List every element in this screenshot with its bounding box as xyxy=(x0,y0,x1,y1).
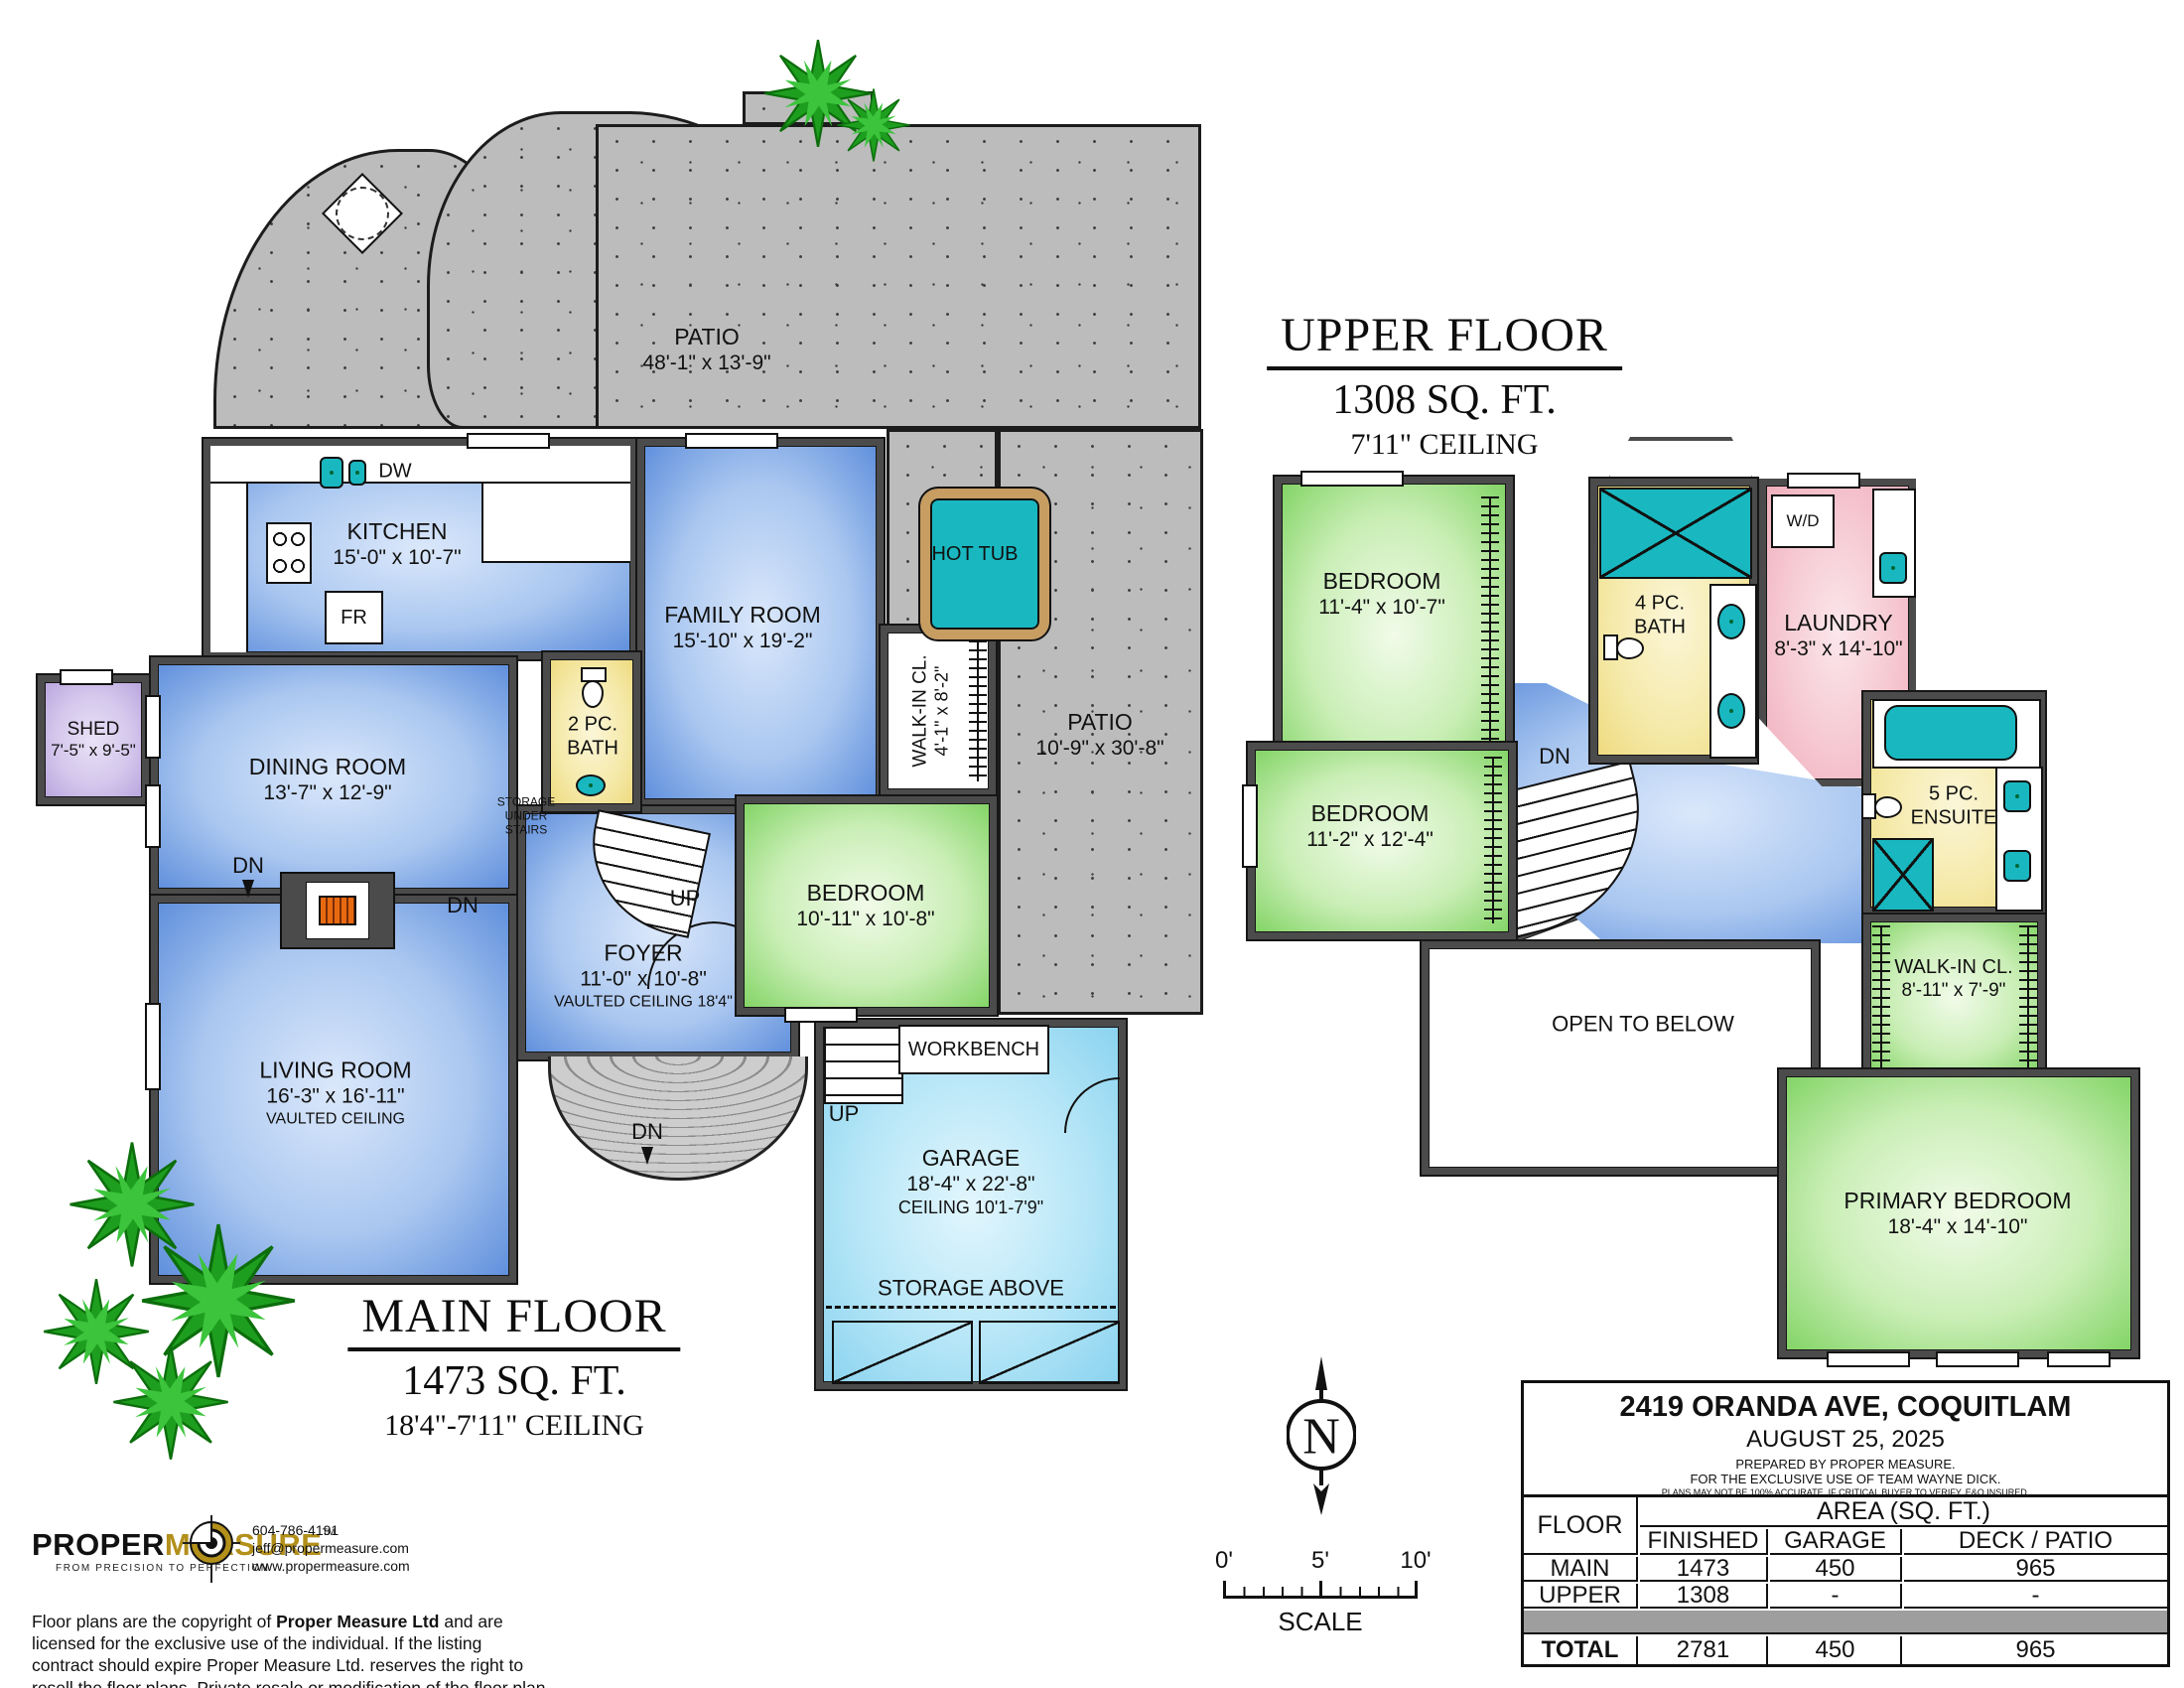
room-note: CEILING 10'1-7'9" xyxy=(898,1197,1043,1219)
toilet-icon xyxy=(1861,793,1903,821)
room-name: PRIMARY BEDROOM xyxy=(1843,1187,2071,1214)
room-name: WALK-IN CL. xyxy=(1894,955,2012,979)
window xyxy=(145,695,161,759)
floor-title: MAIN FLOOR xyxy=(347,1289,680,1351)
upper-bath-label: 4 PC. BATH xyxy=(1634,592,1686,640)
closet-rail xyxy=(1484,757,1502,923)
window xyxy=(145,784,161,848)
room-name: DINING ROOM xyxy=(249,753,406,780)
room-dims: 16'-3" x 16'-11" xyxy=(259,1083,411,1109)
floor-plan-page: PATIO 48'-1" x 13'-9" PATIO 10'-9" x 30'… xyxy=(0,0,2184,1688)
copyright-text: Floor plans are the copyright of Proper … xyxy=(32,1611,548,1688)
room-dims: 18'-4" x 22'-8" xyxy=(898,1172,1043,1197)
area-table: FLOOR AREA (SQ. FT.) FINISHED GARAGE DEC… xyxy=(1524,1497,2167,1664)
kitchen-sink-icon xyxy=(320,457,343,489)
room-dims: 15'-0" x 10'-7" xyxy=(333,545,461,571)
dn-label: DN xyxy=(232,853,264,879)
spacer-row xyxy=(1524,1611,2167,1634)
walk-in-closet-upper-label: WALK-IN CL. 8'-11" x 7'-9" xyxy=(1894,955,2012,1003)
sink-icon xyxy=(576,774,606,796)
storage-above-label: STORAGE ABOVE xyxy=(878,1276,1064,1303)
room-note: VAULTED CEILING xyxy=(259,1109,411,1129)
proper-measure-logo: PROPERMEASURETM FROM PRECISION TO PERFEC… xyxy=(32,1527,548,1589)
dn-label: DN xyxy=(631,1119,663,1145)
room-dims: 18'-4" x 14'-10" xyxy=(1843,1214,2071,1240)
logo-email: jeff@propermeasure.com xyxy=(252,1539,410,1557)
upper-floor-title: UPPER FLOOR 1308 SQ. FT. 7'11" CEILING xyxy=(1267,308,1622,462)
scale-major-tick xyxy=(1319,1581,1322,1599)
room-name: WALK-IN CL. xyxy=(908,654,931,767)
row-upper-garage: - xyxy=(1770,1584,1902,1609)
scale-major-tick xyxy=(1223,1581,1226,1599)
logo-phone: 604-786-4191 xyxy=(252,1521,410,1539)
scale-tick-5: 5' xyxy=(1311,1547,1329,1575)
logo-contact: 604-786-4191 jeff@propermeasure.com www.… xyxy=(252,1521,410,1576)
floor-area: 1308 SQ. FT. xyxy=(1267,376,1622,424)
closet-rail xyxy=(2019,925,2037,1069)
crosshair-target-icon xyxy=(181,1513,242,1585)
room-note: VAULTED CEILING 18'4" xyxy=(554,992,733,1012)
garage-header-cell: GARAGE xyxy=(1770,1529,1902,1555)
room-dims: 7'-5" x 9'-5" xyxy=(51,741,136,762)
open-to-below-area xyxy=(1422,941,1819,1175)
patio-right-label: PATIO 10'-9" x 30'-8" xyxy=(1035,708,1163,762)
row-total-deck: 965 xyxy=(1904,1636,2167,1664)
kitchen-sink-icon xyxy=(348,460,366,486)
garage-label: GARAGE 18'-4" x 22'-8" CEILING 10'1-7'9" xyxy=(898,1144,1043,1219)
dining-room-label: DINING ROOM 13'-7" x 12'-9" xyxy=(249,753,406,806)
room-dims: 8'-11" x 7'-9" xyxy=(1894,980,2012,1003)
room-dims: 11'-4" x 10'-7" xyxy=(1318,595,1445,621)
dishwasher-label: DW xyxy=(378,461,411,484)
fridge-box: FR xyxy=(325,591,383,644)
fridge-label: FR xyxy=(341,607,367,630)
window xyxy=(1827,1351,1910,1367)
scale-tick-0: 0' xyxy=(1215,1547,1233,1575)
toilet-icon xyxy=(579,667,607,709)
laundry-sink-icon xyxy=(1879,552,1907,584)
dn-arrow-icon xyxy=(242,880,254,898)
walk-in-closet-main-label: WALK-IN CL. 4'-1" x 8'-2" xyxy=(908,654,953,767)
front-steps xyxy=(548,1056,808,1181)
address: 2419 ORANDA AVE, COQUITLAM xyxy=(1524,1391,2167,1424)
workbench-label: WORKBENCH xyxy=(908,1039,1039,1061)
room-name: BEDROOM xyxy=(1306,799,1433,827)
bay-window xyxy=(1606,437,1755,483)
room-name: PATIO xyxy=(642,323,770,351)
main-floor-title: MAIN FLOOR 1473 SQ. FT. 18'4"-7'11" CEIL… xyxy=(347,1289,680,1443)
row-total-finished: 2781 xyxy=(1640,1636,1768,1664)
north-label: N xyxy=(1302,1405,1340,1468)
family-room-label: FAMILY ROOM 15'-10" x 19'-2" xyxy=(664,601,821,654)
scale-tick-10: 10' xyxy=(1400,1547,1431,1575)
room-name: BEDROOM xyxy=(1318,567,1445,595)
exclusive-use: FOR THE EXCLUSIVE USE OF TEAM WAYNE DICK… xyxy=(1524,1472,2167,1486)
floor-title: UPPER FLOOR xyxy=(1267,308,1622,370)
row-main-floor: MAIN xyxy=(1524,1557,1638,1582)
bathtub-icon xyxy=(1884,705,2017,761)
date: AUGUST 25, 2025 xyxy=(1524,1426,2167,1454)
window xyxy=(2047,1351,2111,1367)
prepared-by: PREPARED BY PROPER MEASURE. xyxy=(1524,1457,2167,1472)
room-name2: BATH xyxy=(1634,616,1686,639)
up-label: UP xyxy=(829,1101,860,1127)
room-name: SHED xyxy=(51,718,136,741)
row-total-garage: 450 xyxy=(1770,1636,1902,1664)
room-name: 2 PC. xyxy=(567,713,618,737)
logo-web: www.propermeasure.com xyxy=(252,1557,410,1575)
window xyxy=(1936,1351,2019,1367)
powder-room-label: 2 PC. BATH xyxy=(567,713,618,762)
window xyxy=(784,1007,858,1023)
hot-tub-label: HOT TUB xyxy=(931,542,1018,566)
room-name: FAMILY ROOM xyxy=(664,601,821,629)
finished-header-cell: FINISHED xyxy=(1640,1529,1768,1555)
room-name: LIVING ROOM xyxy=(259,1055,411,1083)
stairs-up-garage xyxy=(824,1027,903,1104)
dn-label: DN xyxy=(447,893,478,918)
logo-text-proper: PROPER xyxy=(32,1527,165,1562)
floor-ceiling: 18'4"-7'11" CEILING xyxy=(347,1409,680,1443)
dn-label: DN xyxy=(1539,744,1570,770)
workbench-box: WORKBENCH xyxy=(898,1025,1049,1074)
sink-icon xyxy=(1717,604,1745,639)
room-dims: 48'-1" x 13'-9" xyxy=(642,351,770,376)
dn-arrow-icon xyxy=(641,1147,653,1165)
closet-rail xyxy=(1872,925,1890,1069)
sink-icon xyxy=(2003,850,2031,882)
stove-icon xyxy=(266,522,312,584)
window xyxy=(1242,784,1258,868)
room-dims: 10'-9" x 30'-8" xyxy=(1035,736,1163,762)
row-upper-finished: 1308 xyxy=(1640,1584,1768,1609)
floor-area: 1473 SQ. FT. xyxy=(347,1357,680,1405)
patio-top-label: PATIO 48'-1" x 13'-9" xyxy=(642,323,770,376)
closet-rail xyxy=(969,640,987,781)
room-dims: 11'-2" x 12'-4" xyxy=(1306,827,1433,853)
fireplace-icon xyxy=(280,872,395,949)
garage-door xyxy=(832,1321,973,1384)
title-block: 2419 ORANDA AVE, COQUITLAM AUGUST 25, 20… xyxy=(1521,1380,2170,1667)
storage-above-line xyxy=(826,1306,1116,1309)
area-header-cell: AREA (SQ. FT.) xyxy=(1640,1497,2167,1527)
room-dims: 13'-7" x 12'-9" xyxy=(249,780,406,806)
disclaimer: PLANS MAY NOT BE 100% ACCURATE. IF CRITI… xyxy=(1524,1487,2167,1497)
living-room-label: LIVING ROOM 16'-3" x 16'-11" VAULTED CEI… xyxy=(259,1055,411,1128)
patio-top-rect xyxy=(596,124,1201,429)
washer-dryer-box: W/D xyxy=(1771,494,1835,548)
ensuite-label: 5 PC. ENSUITE xyxy=(1911,782,1997,831)
storage-under-stairs-label: STORAGE UNDER STAIRS xyxy=(484,795,568,836)
sink-icon xyxy=(2003,780,2031,812)
shower-icon xyxy=(1599,488,1752,579)
scale-label: SCALE xyxy=(1278,1607,1362,1637)
shed-label: SHED 7'-5" x 9'-5" xyxy=(51,718,136,762)
room-dims: 10'-11" x 10'-8" xyxy=(796,907,934,932)
sink-icon xyxy=(1717,693,1745,729)
garage-door xyxy=(979,1321,1120,1384)
deck-header-cell: DECK / PATIO xyxy=(1904,1529,2167,1555)
window xyxy=(685,433,778,449)
window xyxy=(60,669,113,685)
room-dims: 8'-3" x 14'-10" xyxy=(1774,636,1902,662)
floor-ceiling: 7'11" CEILING xyxy=(1267,428,1622,462)
room-name: GARAGE xyxy=(898,1144,1043,1172)
room-name: 4 PC. xyxy=(1634,592,1686,616)
laundry-label: LAUNDRY 8'-3" x 14'-10" xyxy=(1774,609,1902,662)
room-name: PATIO xyxy=(1035,708,1163,736)
window xyxy=(1300,471,1404,487)
room-dims: 15'-10" x 19'-2" xyxy=(664,629,821,654)
room-name: KITCHEN xyxy=(333,517,461,545)
room-name: LAUNDRY xyxy=(1774,609,1902,636)
tree-icon xyxy=(111,1342,230,1462)
floor-header-cell: FLOOR xyxy=(1524,1497,1638,1555)
row-main-finished: 1473 xyxy=(1640,1557,1768,1582)
gazebo-icon xyxy=(320,175,409,258)
window xyxy=(467,433,550,449)
row-main-deck: 965 xyxy=(1904,1557,2167,1582)
room-dims: 4'-1" x 8'-2" xyxy=(932,654,954,767)
copyright-pre: Floor plans are the copyright of xyxy=(32,1612,276,1631)
room-name: BEDROOM xyxy=(796,879,934,907)
upper-bedroom1-label: BEDROOM 11'-4" x 10'-7" xyxy=(1318,567,1445,621)
primary-bedroom-label: PRIMARY BEDROOM 18'-4" x 14'-10" xyxy=(1843,1187,2071,1240)
row-upper-deck: - xyxy=(1904,1584,2167,1609)
window xyxy=(1787,473,1860,489)
window xyxy=(145,1003,161,1090)
scale-major-tick xyxy=(1415,1581,1418,1599)
copyright-company: Proper Measure Ltd xyxy=(276,1612,439,1631)
room-name2: BATH xyxy=(567,737,618,761)
row-total-floor: TOTAL xyxy=(1524,1636,1638,1664)
shower-icon xyxy=(1872,838,1934,912)
title-block-header: 2419 ORANDA AVE, COQUITLAM AUGUST 25, 20… xyxy=(1524,1383,2167,1497)
bedroom-main-label: BEDROOM 10'-11" x 10'-8" xyxy=(796,879,934,932)
room-name: 5 PC. xyxy=(1911,782,1997,806)
up-label: UP xyxy=(670,886,701,912)
scale-bar: 0' 5' 10' SCALE xyxy=(1219,1547,1428,1641)
upper-bedroom2-label: BEDROOM 11'-2" x 12'-4" xyxy=(1306,799,1433,853)
tree-icon xyxy=(836,87,911,163)
row-main-garage: 450 xyxy=(1770,1557,1902,1582)
washer-dryer-label: W/D xyxy=(1786,511,1819,531)
open-to-below-label: OPEN TO BELOW xyxy=(1552,1012,1734,1039)
kitchen-label: KITCHEN 15'-0" x 10'-7" xyxy=(333,517,461,571)
room-name2: ENSUITE xyxy=(1911,806,1997,830)
closet-rail xyxy=(1481,496,1499,773)
row-upper-floor: UPPER xyxy=(1524,1584,1638,1609)
